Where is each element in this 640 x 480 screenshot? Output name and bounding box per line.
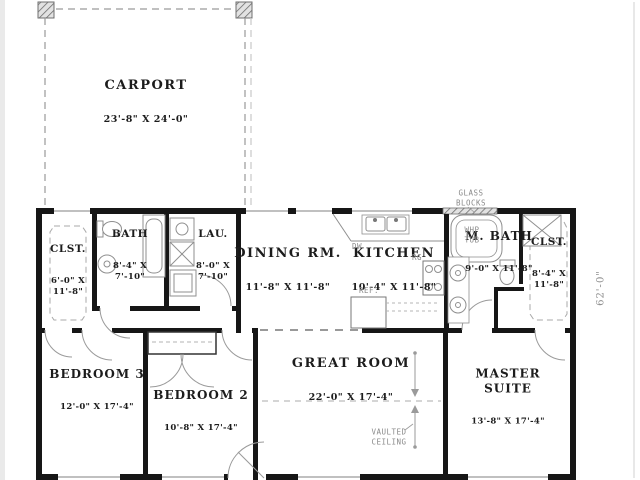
bedroom2-closet <box>148 332 216 354</box>
kitchen-fixtures <box>333 214 444 328</box>
laundry-fixtures <box>170 218 196 296</box>
master-bath-fixtures <box>448 215 561 323</box>
carport-outline <box>38 2 252 207</box>
door-arcs <box>45 275 565 478</box>
bath-fixtures <box>97 215 165 277</box>
floor-plan: CARPORT 23'-8" X 24'-0" CLST. 6'-0" X 11… <box>0 0 640 480</box>
vaulted-ceiling-marks <box>262 351 441 449</box>
floor-plan-linework <box>0 0 640 480</box>
